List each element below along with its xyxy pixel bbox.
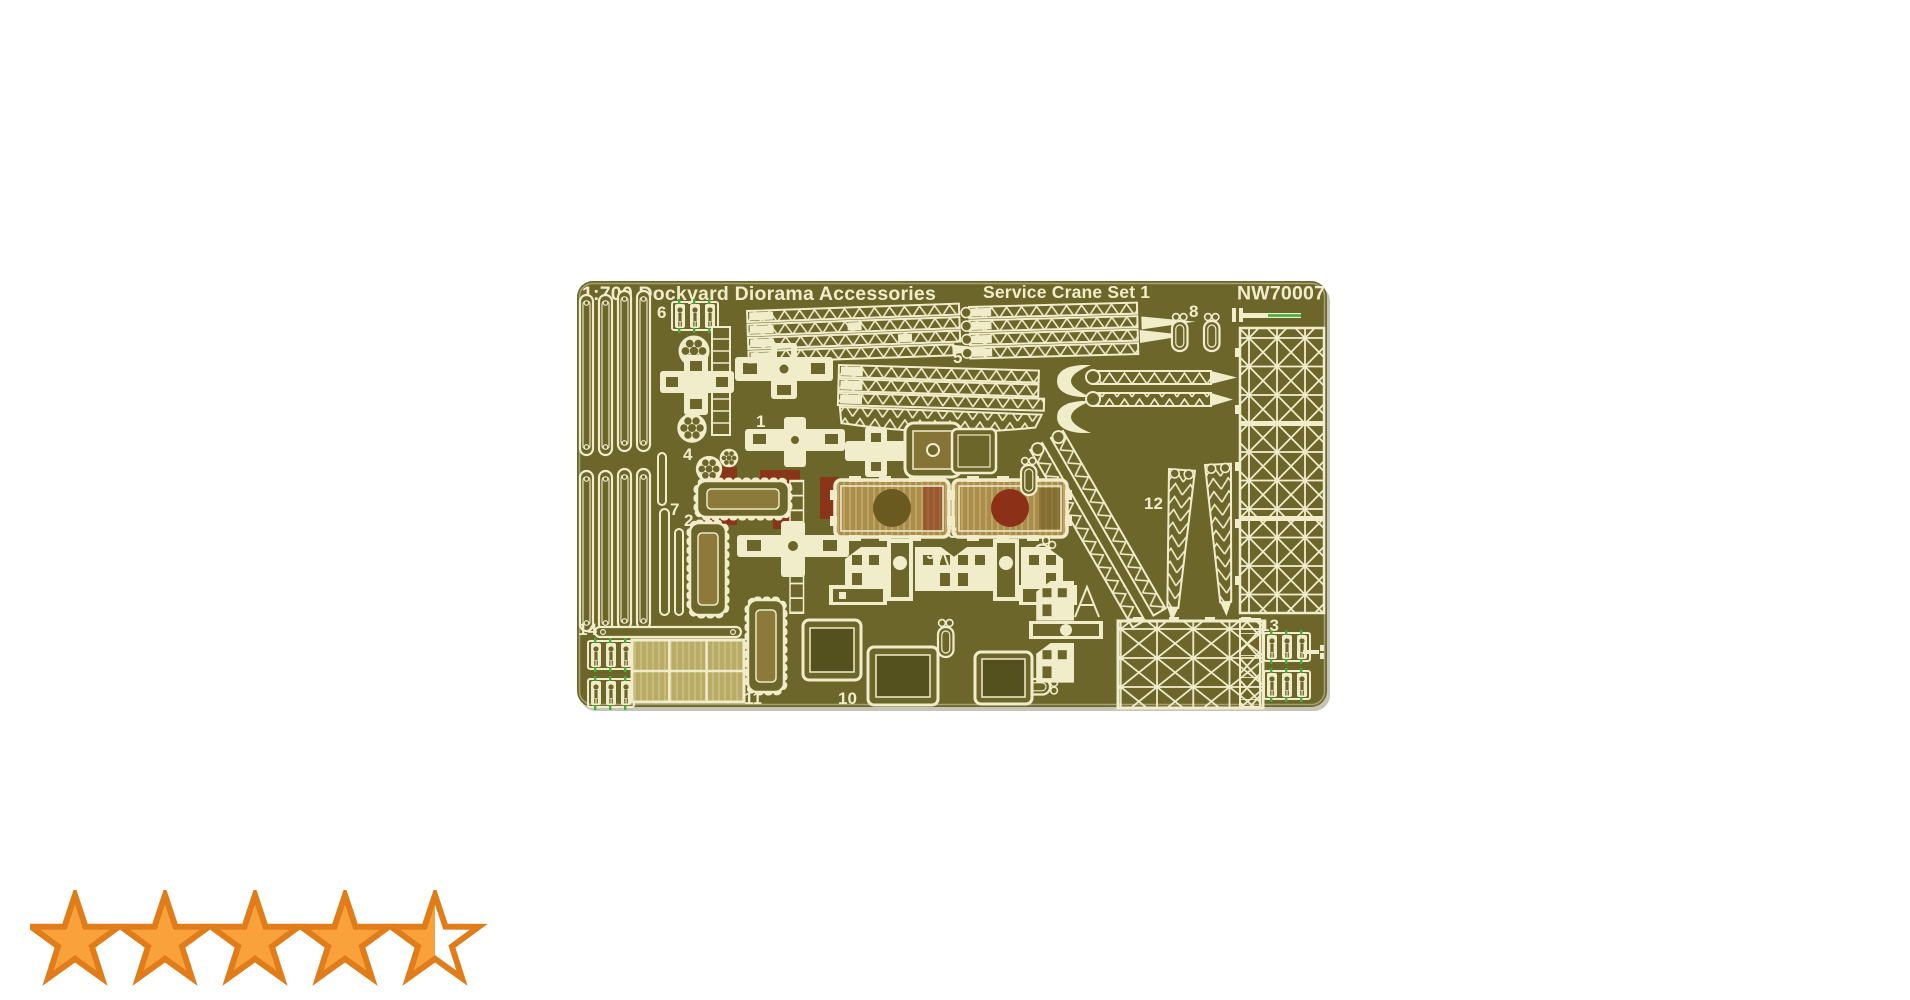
part-label-14: 14	[578, 620, 597, 639]
part-label-13: 13	[1260, 616, 1279, 635]
part-label-8: 8	[1189, 302, 1198, 321]
part-label-11: 11	[744, 689, 762, 708]
part-label-3: 3	[948, 523, 957, 542]
star-icon-2	[121, 895, 208, 978]
star-icon-1	[31, 895, 118, 978]
part-label-7: 7	[670, 500, 679, 519]
rating-stars[interactable]	[30, 890, 490, 988]
part-label-2: 2	[684, 511, 693, 530]
star-icon-3	[211, 895, 298, 978]
part-label-10: 10	[838, 689, 857, 708]
part-label-1: 1	[756, 412, 765, 431]
rating-stars-graphic	[30, 890, 490, 988]
crane-deck-part-a	[830, 476, 954, 541]
fret-part-code: NW70007	[1237, 283, 1325, 305]
part-label-12: 12	[1144, 494, 1163, 513]
product-page: 1:700 Dockyard Diorama Accessories Servi…	[0, 0, 1910, 1000]
photo-etch-fret: 1:700 Dockyard Diorama Accessories Servi…	[577, 281, 1330, 711]
star-icon-4	[301, 895, 388, 978]
tower-panel-part	[1235, 328, 1324, 613]
fret-title-set: Service Crane Set 1	[983, 282, 1150, 302]
part-label-4: 4	[683, 445, 693, 464]
platform-grid-part	[1118, 617, 1263, 708]
part-label-6: 6	[657, 303, 666, 322]
fret-title-scale: 1:700 Dockyard Diorama Accessories	[582, 283, 936, 305]
long-rod-part	[595, 627, 741, 637]
part-label-5: 5	[953, 348, 962, 367]
crane-deck-part-b	[948, 476, 1072, 541]
part-label-9: 9	[926, 544, 935, 563]
base-plate-parts	[905, 423, 996, 477]
star-icon-5-half	[391, 895, 478, 978]
hatch-grid-part	[632, 640, 744, 702]
product-photo: 1:700 Dockyard Diorama Accessories Servi…	[0, 0, 1910, 1000]
